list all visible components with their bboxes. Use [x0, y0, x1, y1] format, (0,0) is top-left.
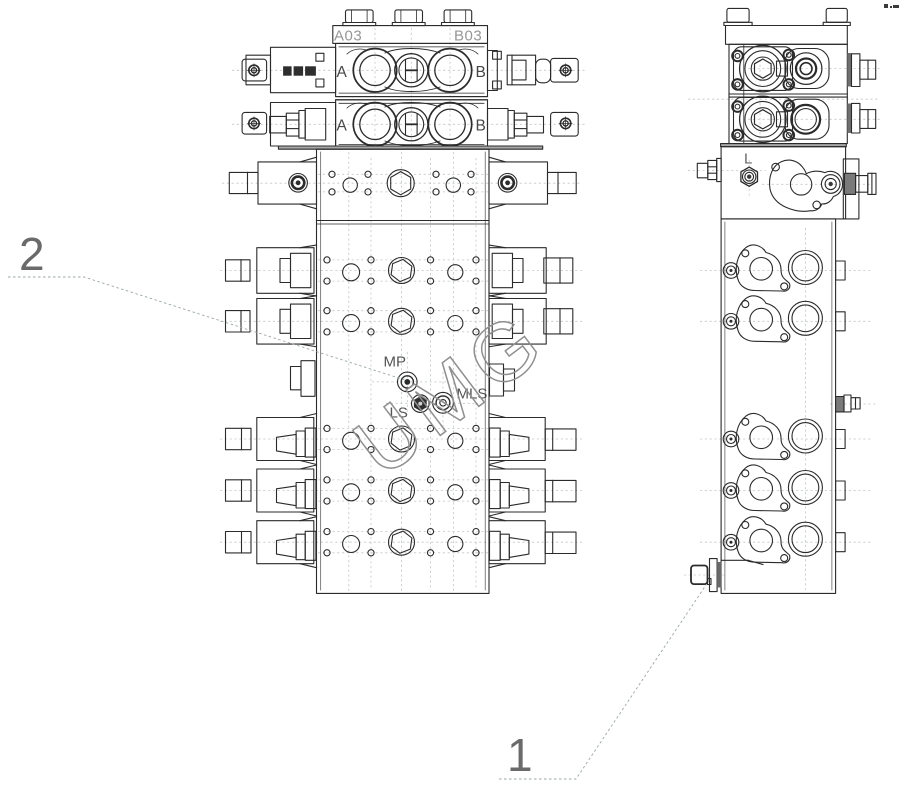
- svg-text:2: 2: [19, 228, 45, 280]
- svg-text:MP: MP: [384, 354, 407, 371]
- svg-text:A03: A03: [334, 28, 362, 45]
- svg-text:L: L: [744, 151, 752, 168]
- svg-text:B: B: [476, 118, 486, 135]
- svg-text:1: 1: [507, 729, 533, 781]
- svg-text:A: A: [337, 118, 348, 135]
- svg-text:B: B: [476, 64, 486, 81]
- svg-text:A: A: [337, 64, 348, 81]
- svg-text:B03: B03: [454, 28, 482, 45]
